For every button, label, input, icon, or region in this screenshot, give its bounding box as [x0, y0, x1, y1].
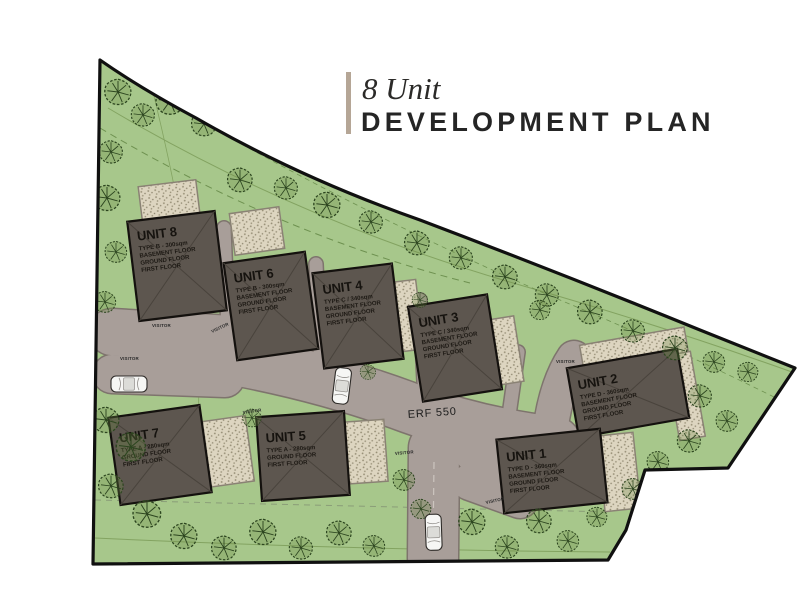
- unit-5-building: UNIT 5 TYPE A - 280sqm GROUND FLOOR FIRS…: [256, 411, 350, 501]
- title-accent-bar: [346, 72, 351, 134]
- site-plan: UNIT 8 TYPE B - 300sqm BASEMENT FLOOR GR…: [0, 0, 800, 600]
- unit-6-building: UNIT 6 TYPE B - 300sqm BASEMENT FLOOR GR…: [224, 252, 319, 360]
- title-subtitle: 8 Unit: [362, 71, 442, 106]
- unit-8-building: UNIT 8 TYPE B - 300sqm BASEMENT FLOOR GR…: [127, 211, 227, 321]
- unit-4-building: UNIT 4 TYPE C / 340sqm BASEMENT FLOOR GR…: [312, 263, 403, 368]
- visitor-parking-label: VISITOR: [556, 359, 576, 364]
- visitor-parking-label: VISITOR: [152, 323, 172, 328]
- unit-1-building: UNIT 1 TYPE D - 360sqm BASEMENT FLOOR GR…: [496, 429, 607, 513]
- visitor-parking-label: VISITOR: [120, 356, 140, 361]
- title-heading: DEVELOPMENT PLAN: [361, 107, 715, 137]
- plan-title: 8 Unit DEVELOPMENT PLAN: [346, 71, 715, 137]
- car-icon: [111, 376, 147, 392]
- driveway-pad: [229, 207, 284, 256]
- car-icon: [425, 514, 442, 551]
- unit-3-building: UNIT 3 TYPE C / 340sqm BASEMENT FLOOR GR…: [408, 294, 502, 401]
